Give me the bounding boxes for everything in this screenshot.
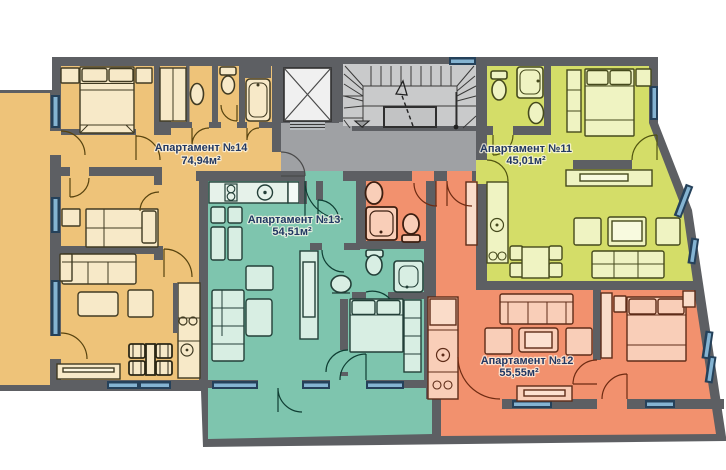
svg-text:Апартамент №12: Апартамент №12: [481, 355, 574, 367]
svg-text:54,51м²: 54,51м²: [272, 226, 312, 238]
svg-text:45,01м²: 45,01м²: [506, 155, 546, 167]
svg-text:55,55м²: 55,55м²: [499, 367, 539, 379]
svg-text:Апартамент №11: Апартамент №11: [480, 143, 572, 155]
svg-text:Апартамент №14: Апартамент №14: [155, 142, 249, 154]
svg-text:74,94м²: 74,94м²: [181, 155, 221, 167]
svg-text:Апартамент №13: Апартамент №13: [248, 214, 341, 226]
